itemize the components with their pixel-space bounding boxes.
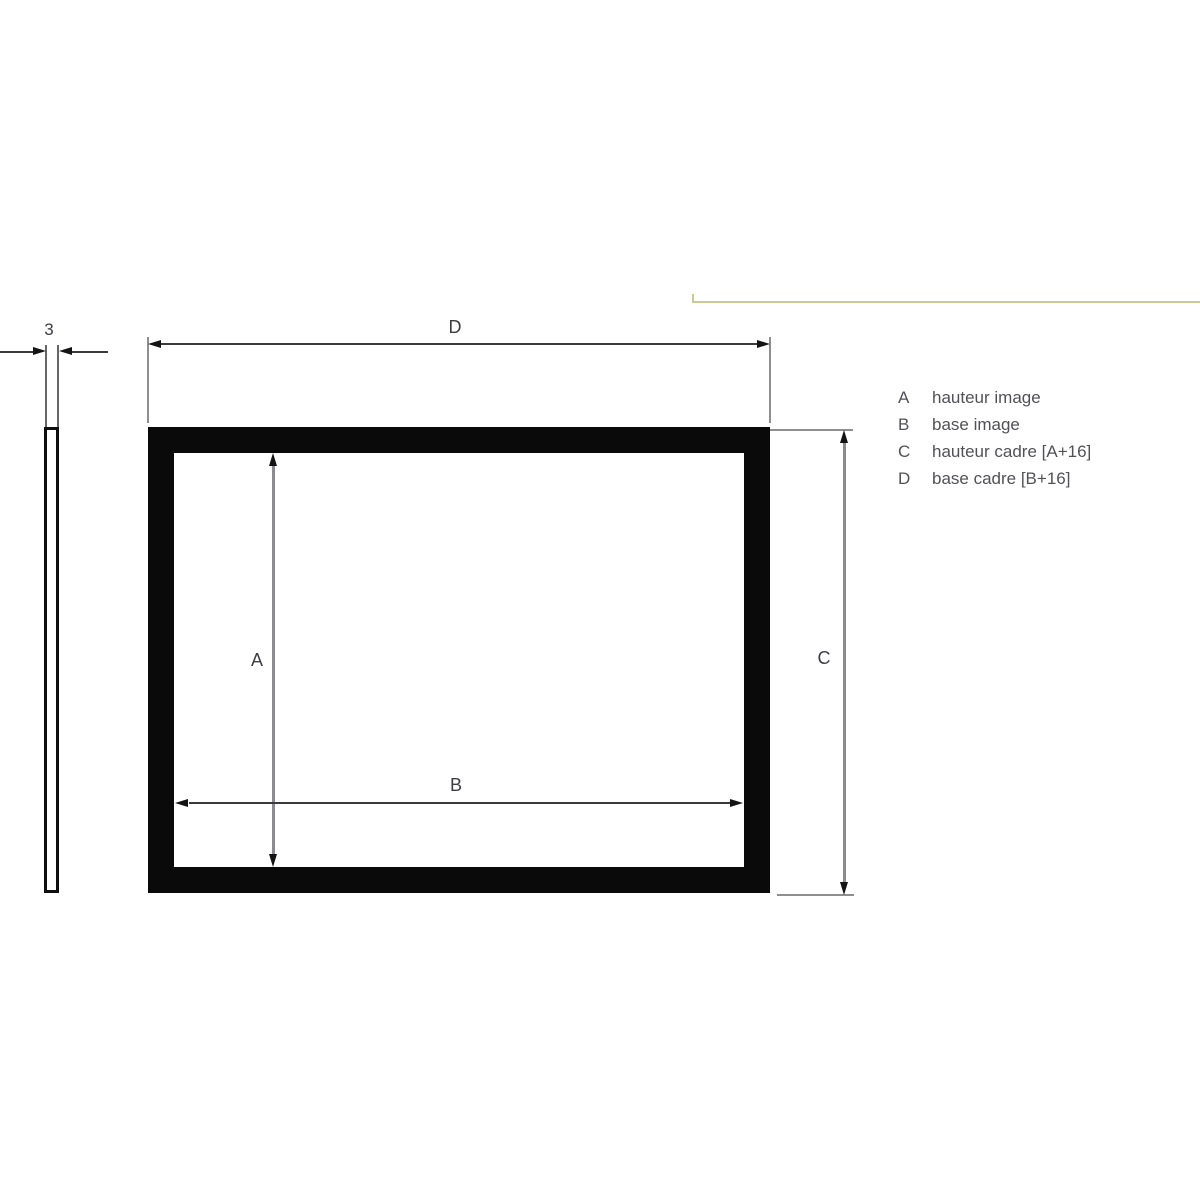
accent-line: [692, 301, 1200, 303]
legend-label: hauteur image: [932, 384, 1041, 411]
legend-key: B: [898, 411, 932, 438]
b-arrowhead-right-icon: [730, 799, 743, 807]
legend-label: base cadre [B+16]: [932, 465, 1070, 492]
a-arrowhead-up-icon: [269, 453, 277, 466]
legend-row: A hauteur image: [898, 384, 1091, 411]
c-arrowhead-down-icon: [840, 882, 848, 895]
legend-label: base image: [932, 411, 1020, 438]
b-arrowhead-left-icon: [175, 799, 188, 807]
legend-row: D base cadre [B+16]: [898, 465, 1091, 492]
d-extension-line-right: [769, 337, 771, 423]
c-dim-line: [843, 442, 846, 882]
thickness-dim-label: 3: [38, 320, 60, 340]
c-dim-label: C: [812, 648, 836, 669]
d-dim-line: [161, 343, 757, 345]
legend-row: B base image: [898, 411, 1091, 438]
a-dim-line: [272, 462, 275, 854]
legend: A hauteur image B base image C hauteur c…: [898, 384, 1091, 492]
thickness-arrowhead-right-icon: [59, 347, 72, 355]
d-arrowhead-left-icon: [148, 340, 161, 348]
b-dim-line: [189, 802, 730, 804]
thickness-extension-line-left: [45, 345, 47, 427]
thickness-extension-line-right: [57, 345, 59, 427]
legend-row: C hauteur cadre [A+16]: [898, 438, 1091, 465]
c-arrowhead-up-icon: [840, 430, 848, 443]
legend-key: C: [898, 438, 932, 465]
thickness-arrowhead-left-icon: [33, 347, 46, 355]
diagram-canvas: 3 D A B C A hauteur image: [0, 0, 1200, 1200]
d-dim-label: D: [444, 317, 466, 338]
thickness-dim-line-left: [0, 351, 33, 353]
thickness-dim-line-right: [72, 351, 108, 353]
d-arrowhead-right-icon: [757, 340, 770, 348]
legend-key: A: [898, 384, 932, 411]
legend-label: hauteur cadre [A+16]: [932, 438, 1091, 465]
d-extension-line-left: [147, 337, 149, 423]
profile-bar: [44, 427, 59, 893]
a-dim-label: A: [245, 650, 269, 671]
b-dim-label: B: [445, 775, 467, 796]
legend-key: D: [898, 465, 932, 492]
frame-front-view: [148, 427, 770, 893]
a-arrowhead-down-icon: [269, 854, 277, 867]
